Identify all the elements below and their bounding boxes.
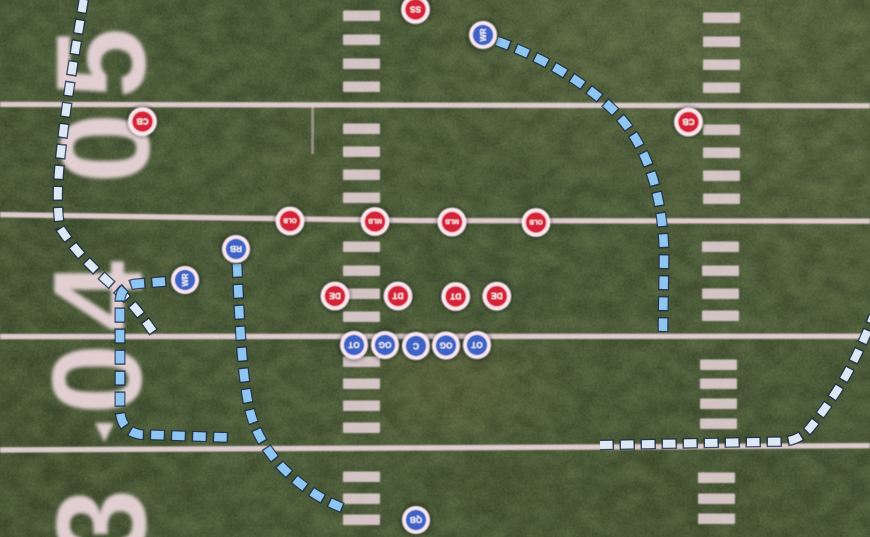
svg-text:MLB: MLB <box>445 218 459 225</box>
svg-text:CB: CB <box>137 117 149 127</box>
svg-text:DE: DE <box>329 291 341 301</box>
svg-text:OG: OG <box>440 341 453 351</box>
svg-text:WR: WR <box>479 28 488 41</box>
svg-text:OG: OG <box>379 340 392 350</box>
svg-text:CB: CB <box>683 117 695 127</box>
svg-text:DE: DE <box>491 291 503 301</box>
svg-text:OLB: OLB <box>529 218 543 225</box>
svg-text:RB: RB <box>230 244 242 254</box>
svg-text:WR: WR <box>181 273 190 286</box>
svg-text:DT: DT <box>392 291 403 301</box>
svg-text:QB: QB <box>410 515 422 525</box>
svg-text:OT: OT <box>471 340 483 350</box>
svg-text:C: C <box>412 341 419 351</box>
svg-text:OLB: OLB <box>283 217 297 224</box>
svg-text:SS: SS <box>410 5 422 15</box>
svg-text:DT: DT <box>450 292 461 302</box>
svg-text:OT: OT <box>348 340 360 350</box>
svg-text:MLB: MLB <box>368 217 382 224</box>
svg-text:0: 0 <box>26 344 168 415</box>
svg-text:3: 3 <box>30 489 172 537</box>
svg-text:5: 5 <box>30 28 172 99</box>
